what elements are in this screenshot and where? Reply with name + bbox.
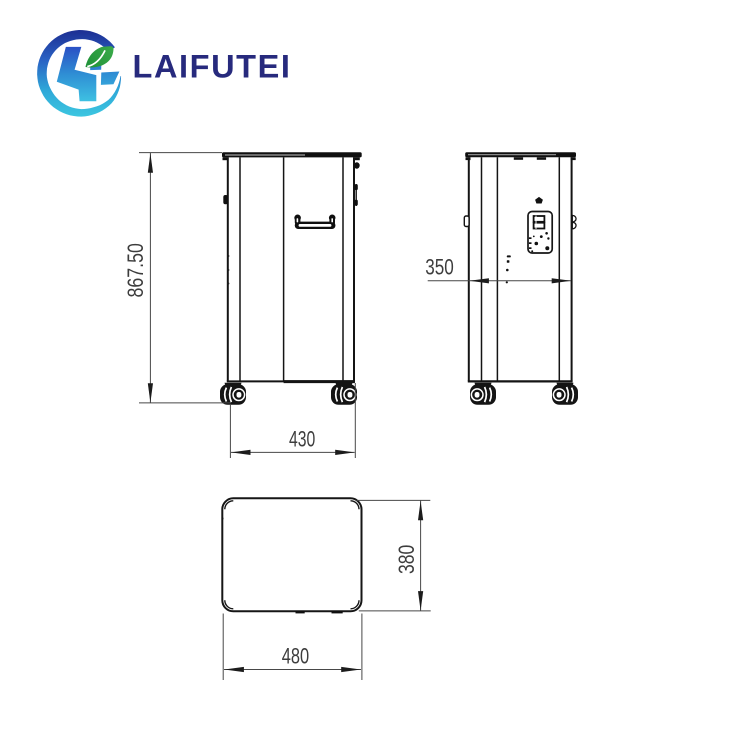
svg-text:430: 430 bbox=[289, 427, 315, 452]
svg-text:867.50: 867.50 bbox=[124, 243, 148, 297]
svg-text:480: 480 bbox=[282, 644, 309, 669]
svg-text:380: 380 bbox=[395, 545, 420, 574]
svg-text:350: 350 bbox=[425, 256, 454, 281]
svg-text:LAIFUTEI: LAIFUTEI bbox=[133, 49, 292, 85]
